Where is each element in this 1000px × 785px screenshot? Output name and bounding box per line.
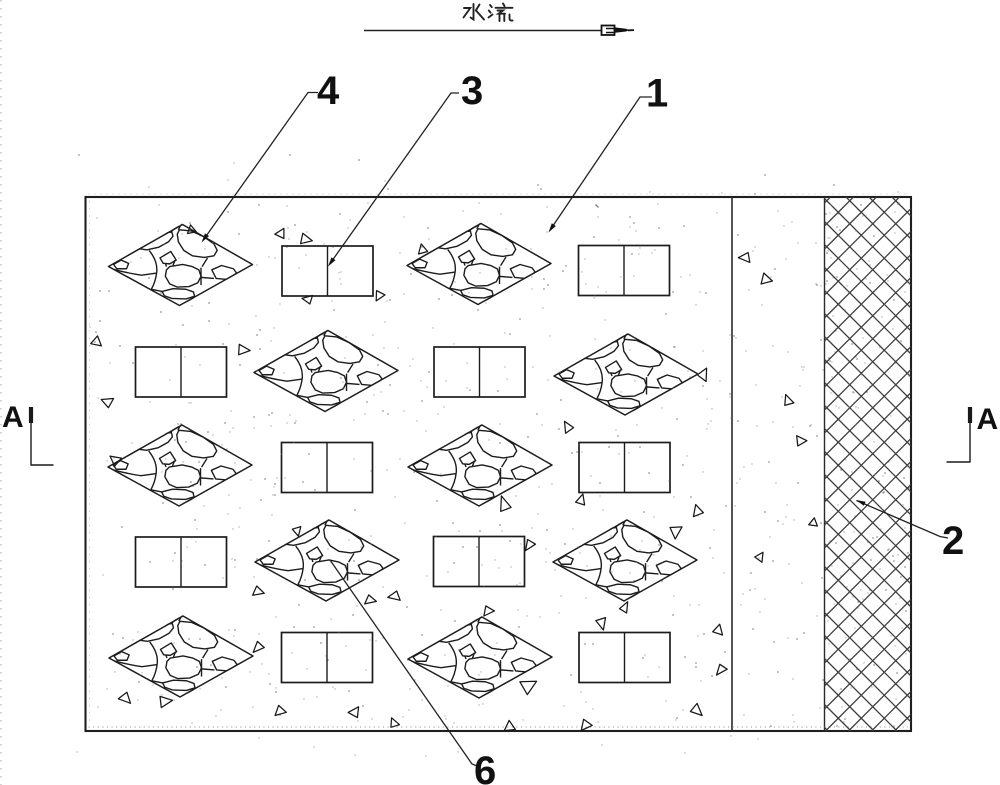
svg-text:3: 3	[461, 69, 483, 113]
svg-text:4: 4	[317, 69, 340, 113]
svg-text:1: 1	[646, 72, 668, 116]
svg-text:A: A	[977, 403, 999, 436]
svg-text:6: 6	[474, 749, 496, 785]
svg-text:2: 2	[942, 519, 964, 563]
svg-text:A: A	[2, 401, 24, 434]
